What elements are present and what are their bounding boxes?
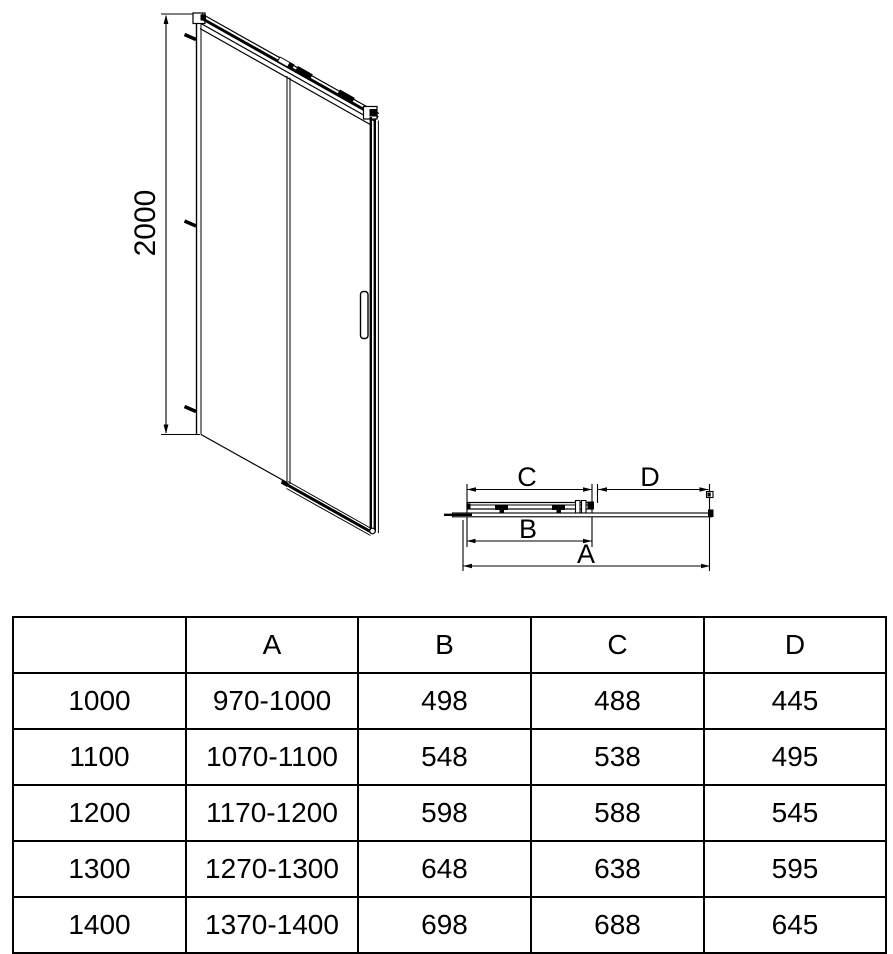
cell-size: 1000 (13, 673, 186, 729)
dim-d-label: D (640, 462, 660, 492)
door-right-stile (371, 117, 379, 533)
dim-b-label: B (519, 514, 537, 544)
cell-b: 698 (358, 897, 531, 953)
cell-a: 970-1000 (186, 673, 358, 729)
cell-c: 688 (531, 897, 704, 953)
table-row: 1200 1170-1200 598 588 545 (13, 785, 886, 841)
cell-size: 1400 (13, 897, 186, 953)
header-d: D (704, 617, 886, 673)
cell-c: 488 (531, 673, 704, 729)
cell-a: 1370-1400 (186, 897, 358, 953)
cell-c: 638 (531, 841, 704, 897)
cell-d: 595 (704, 841, 886, 897)
cell-b: 548 (358, 729, 531, 785)
cell-size: 1300 (13, 841, 186, 897)
cell-size: 1100 (13, 729, 186, 785)
cell-a: 1270-1300 (186, 841, 358, 897)
height-dim-label: 2000 (129, 190, 162, 257)
track-end-cap (370, 528, 376, 534)
plan-sliding-panel (467, 501, 594, 514)
cell-c: 538 (531, 729, 704, 785)
table-row: 1000 970-1000 498 488 445 (13, 673, 886, 729)
plan-panel-end-cap (708, 510, 714, 518)
top-view: C D (444, 462, 714, 571)
table-header-row: A B C D (13, 617, 886, 673)
dim-a-label: A (577, 539, 595, 569)
header-a: A (186, 617, 358, 673)
dim-c: C (467, 462, 592, 492)
cell-a: 1070-1100 (186, 729, 358, 785)
arrow-down-icon (164, 425, 169, 435)
table-row: 1300 1270-1300 648 638 595 (13, 841, 886, 897)
technical-drawing: 2000 C D (0, 0, 893, 600)
cell-d: 495 (704, 729, 886, 785)
front-view: 2000 (129, 13, 379, 536)
cell-c: 588 (531, 785, 704, 841)
dim-d: D (598, 462, 709, 492)
plan-roller (552, 505, 565, 511)
dim-b: B (467, 514, 593, 544)
cell-b: 498 (358, 673, 531, 729)
shower-door-spec-sheet: 2000 C D (0, 0, 893, 948)
header-size (13, 617, 186, 673)
table-row: 1100 1070-1100 548 538 495 (13, 729, 886, 785)
wall-tabs (185, 35, 197, 412)
cell-d: 445 (704, 673, 886, 729)
cell-d: 545 (704, 785, 886, 841)
cell-d: 645 (704, 897, 886, 953)
door-handle (361, 292, 369, 339)
cell-b: 648 (358, 841, 531, 897)
cell-a: 1170-1200 (186, 785, 358, 841)
dim-a: A (463, 539, 710, 569)
cell-size: 1200 (13, 785, 186, 841)
cell-b: 598 (358, 785, 531, 841)
plan-bumper (582, 501, 587, 514)
arrow-up-icon (164, 15, 169, 25)
bottom-track (281, 480, 375, 536)
plan-end-cap (588, 502, 595, 510)
header-b: B (358, 617, 531, 673)
plan-bumper (576, 501, 581, 514)
dimension-table: A B C D 1000 970-1000 498 488 445 1100 1… (12, 616, 887, 954)
header-c: C (531, 617, 704, 673)
dim-c-label: C (517, 462, 537, 492)
table-row: 1400 1370-1400 698 688 645 (13, 897, 886, 953)
plan-roller (495, 505, 508, 511)
